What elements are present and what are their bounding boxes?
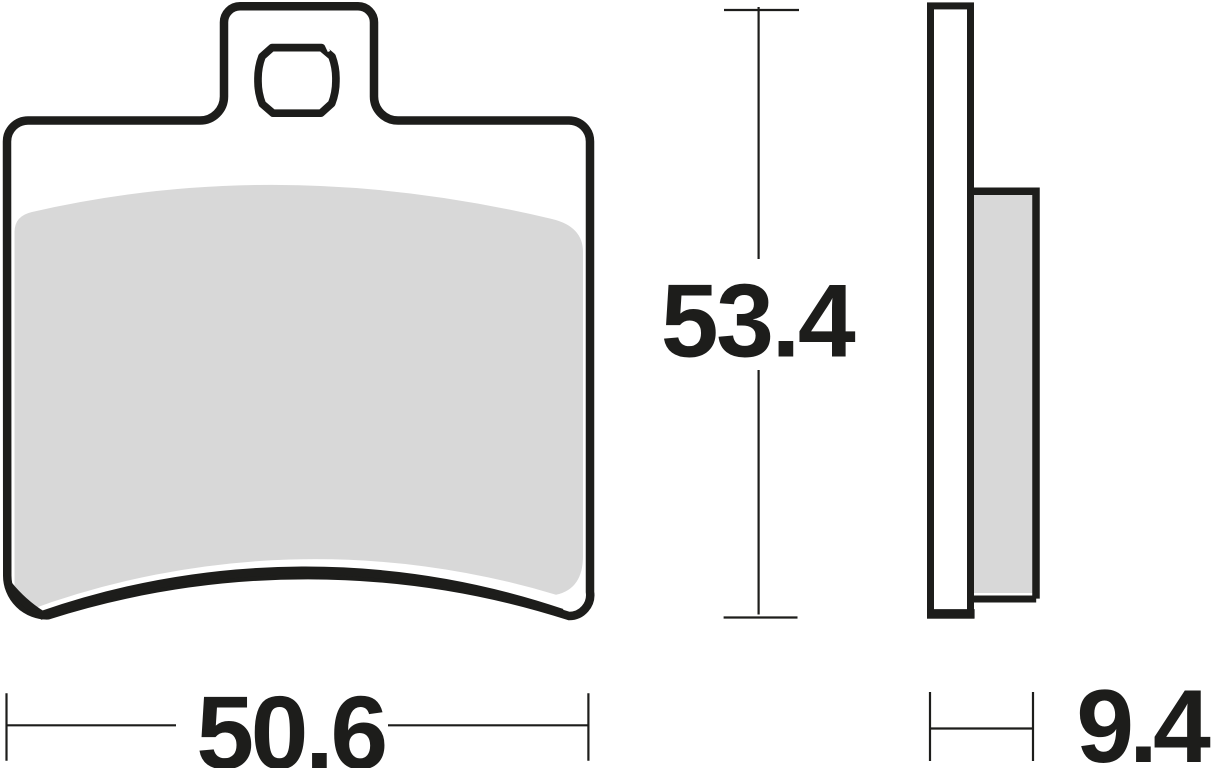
svg-text:50.6: 50.6	[196, 676, 385, 768]
svg-text:9.4: 9.4	[1076, 669, 1211, 768]
svg-text:53.4: 53.4	[661, 263, 856, 379]
